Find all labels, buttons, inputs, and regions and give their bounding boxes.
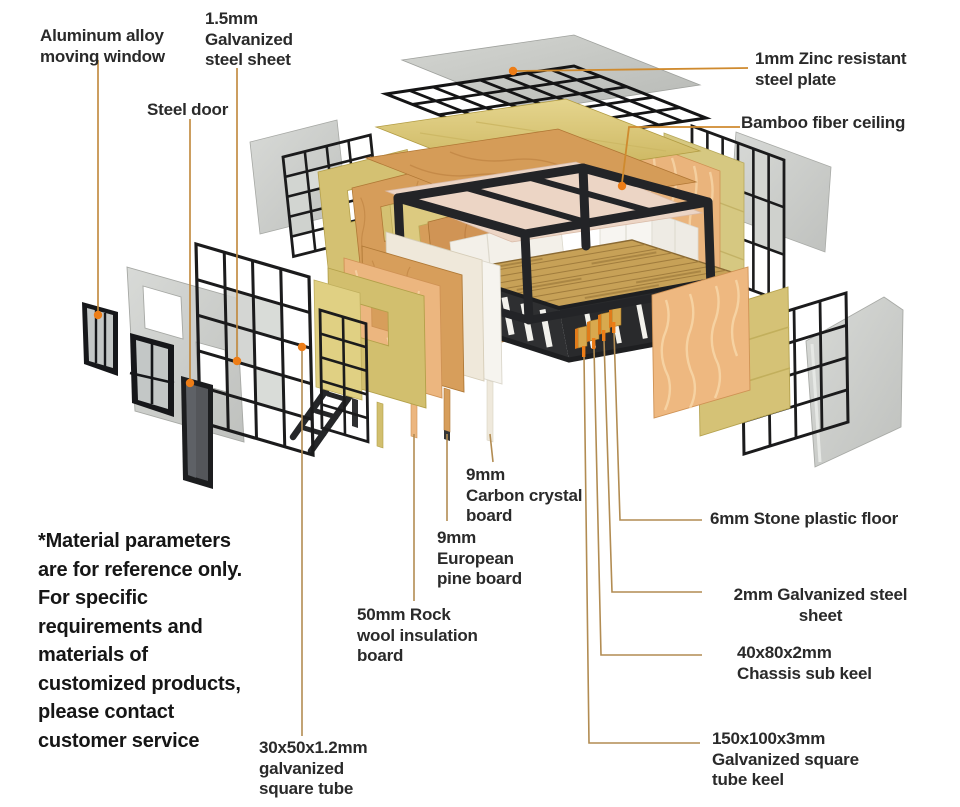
steel-door-panel [181,376,213,489]
callout-bamboo-ceiling: Bamboo fiber ceiling [741,113,905,134]
callout-european-pine: 9mm European pine board [437,528,522,590]
exploded-house-diagram: Aluminum alloy moving window 1.5mm Galva… [0,0,960,807]
callout-aluminum-window: Aluminum alloy moving window [40,26,165,67]
callout-galvanized-1-5mm: 1.5mm Galvanized steel sheet [205,9,293,71]
callout-carbon-crystal: 9mm Carbon crystal board [466,465,582,527]
callout-zinc-plate: 1mm Zinc resistant steel plate [755,49,906,90]
pine-board-tail [444,388,450,432]
callout-tube-keel: 150x100x3mm Galvanized square tube keel [712,729,859,791]
callout-steel-door: Steel door [147,100,228,121]
gold-board-tail [377,402,383,448]
callout-chassis-sub-keel: 40x80x2mm Chassis sub keel [737,643,872,684]
callout-galvanized-2mm: 2mm Galvanized steel sheet [728,585,913,626]
callout-rock-wool: 50mm Rock wool insulation board [357,605,478,667]
aluminum-window-2 [130,333,174,417]
front-left-pieces [82,244,313,489]
material-disclaimer-note: *Material parameters are for reference o… [38,527,288,755]
callout-stone-floor: 6mm Stone plastic floor [710,509,898,530]
carbon-board-tail [487,380,493,442]
right-wall-stack-lower [652,267,903,467]
